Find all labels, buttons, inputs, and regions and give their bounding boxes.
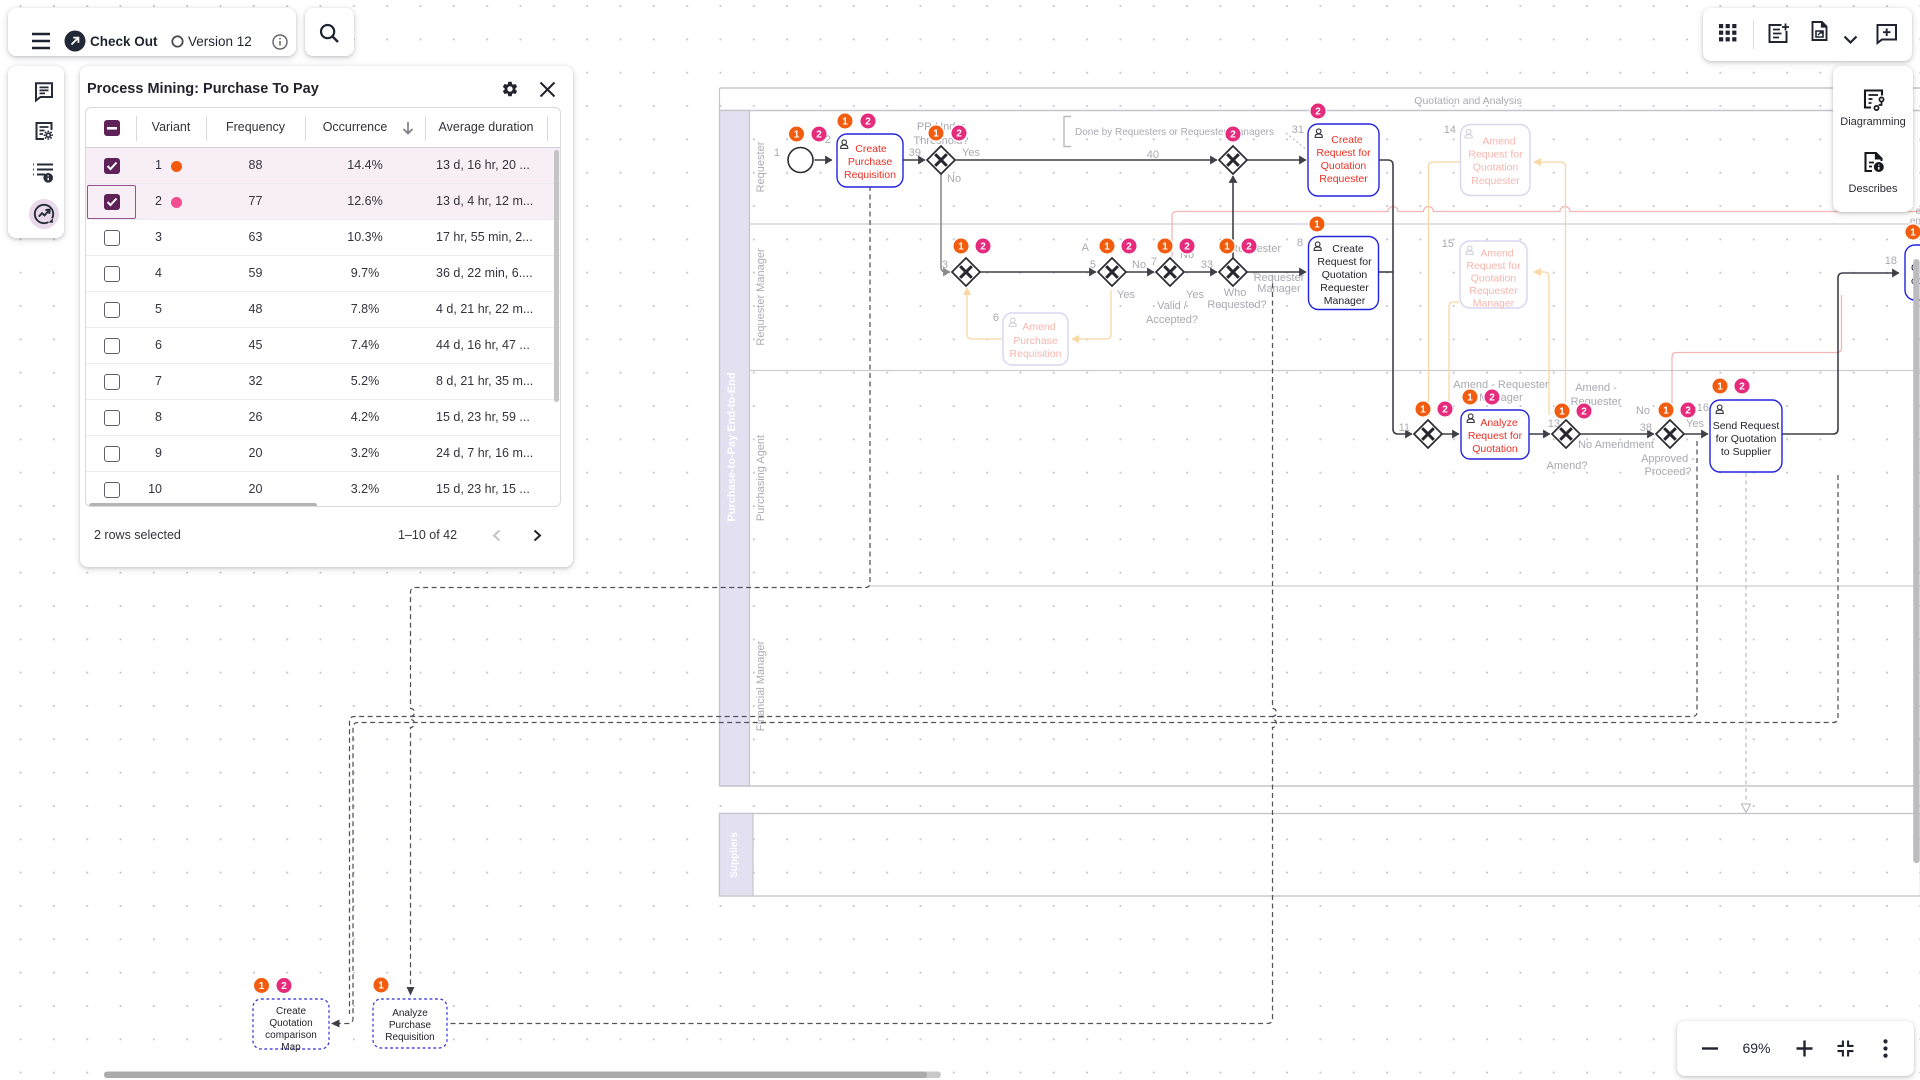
svg-text:to Supplier: to Supplier [1721,446,1772,458]
svg-text:2: 2 [980,242,986,253]
svg-text:1: 1 [1717,382,1723,393]
svg-text:2: 2 [281,981,287,992]
svg-text:Financial Manager: Financial Manager [755,640,767,731]
svg-text:1: 1 [1467,393,1473,404]
svg-text:2: 2 [1685,406,1691,417]
svg-text:1: 1 [774,147,780,159]
svg-text:Send Request: Send Request [1713,420,1780,432]
svg-text:No: No [947,173,961,185]
svg-text:2: 2 [1739,382,1745,393]
svg-text:Yes: Yes [1186,289,1204,301]
svg-text:2: 2 [1184,242,1190,253]
svg-text:31: 31 [1292,124,1304,136]
svg-text:Quotation and Analysis: Quotation and Analysis [1414,95,1521,107]
svg-text:1: 1 [259,981,265,992]
svg-text:2: 2 [1315,107,1321,118]
svg-text:No Amendment: No Amendment [1578,439,1654,451]
svg-text:Suppliers: Suppliers [729,832,740,878]
svg-text:1: 1 [1663,406,1669,417]
svg-text:Requester: Requester [755,141,767,192]
svg-text:2: 2 [956,129,962,140]
svg-text:Quotation: Quotation [269,1018,312,1029]
svg-text:Request for: Request for [1317,256,1372,268]
svg-text:Quotation: Quotation [1321,160,1367,172]
svg-text:Quotation: Quotation [1471,273,1517,285]
svg-text:Requisition: Requisition [1010,348,1062,360]
svg-text:Create: Create [276,1006,306,1017]
svg-text:Who: Who [1224,287,1247,299]
svg-text:Manager: Manager [1257,283,1301,295]
svg-text:1: 1 [1314,220,1320,231]
svg-text:33: 33 [1201,259,1213,271]
svg-text:Purchase: Purchase [1013,335,1058,347]
svg-text:Quotation: Quotation [1472,443,1518,455]
svg-text:1: 1 [1224,242,1230,253]
svg-text:2: 2 [1581,407,1587,418]
svg-text:11: 11 [1399,422,1410,434]
svg-text:Valid /: Valid / [1157,300,1188,312]
svg-text:Requested?: Requested? [1207,299,1266,311]
svg-text:2: 2 [1442,405,1448,416]
svg-text:5: 5 [1090,259,1096,271]
svg-text:comparison: comparison [265,1030,317,1041]
svg-text:Proceed?: Proceed? [1644,466,1691,478]
svg-text:2: 2 [825,134,831,146]
svg-text:14: 14 [1444,124,1456,136]
svg-text:1: 1 [1162,242,1168,253]
svg-text:Analyze: Analyze [1480,417,1518,429]
svg-text:No: No [1636,405,1650,417]
svg-text:Quotation: Quotation [1473,162,1519,174]
svg-text:7: 7 [1151,256,1157,268]
svg-text:13: 13 [1548,418,1560,430]
svg-text:Quotation: Quotation [1322,269,1368,281]
svg-text:Yes: Yes [962,147,980,159]
svg-text:Purchase: Purchase [848,156,893,168]
svg-text:1: 1 [933,129,939,140]
svg-text:for Quotation: for Quotation [1716,433,1777,445]
svg-text:2: 2 [865,117,871,128]
svg-text:Request for: Request for [1468,149,1523,161]
svg-text:Requester: Requester [1320,282,1369,294]
svg-text:Amend: Amend [1480,248,1513,260]
svg-text:Requester Manager: Requester Manager [755,248,767,346]
svg-text:Create: Create [1331,134,1363,146]
svg-text:Request for: Request for [1466,260,1521,272]
svg-text:Create: Create [1332,243,1364,255]
svg-text:Accepted?: Accepted? [1146,314,1198,326]
svg-text:2: 2 [1230,130,1236,141]
svg-text:No: No [1132,259,1146,271]
svg-text:Purchase: Purchase [389,1020,432,1031]
svg-text:Approved -: Approved - [1641,453,1695,465]
svg-text:Amend: Amend [1482,136,1515,148]
svg-text:Done by Requesters or Requeste: Done by Requesters or Requester Managers [1075,127,1274,138]
svg-text:Purchasing Agent: Purchasing Agent [755,435,767,521]
svg-text:Manager: Manager [1324,295,1366,307]
svg-text:3: 3 [942,259,948,271]
svg-text:Amend -: Amend - [1575,382,1617,394]
svg-text:Requisition: Requisition [844,169,896,181]
svg-text:1: 1 [378,981,384,992]
svg-text:1: 1 [1104,242,1110,253]
svg-text:Requester: Requester [1471,175,1520,187]
svg-text:2: 2 [1489,393,1495,404]
svg-text:Amend?: Amend? [1547,460,1588,472]
svg-text:1: 1 [1559,407,1565,418]
svg-text:Yes: Yes [1117,289,1135,301]
svg-text:Request for: Request for [1468,430,1523,442]
svg-text:A: A [1082,242,1090,254]
svg-text:16: 16 [1697,402,1709,414]
svg-text:18: 18 [1885,255,1897,267]
svg-text:6: 6 [993,312,999,324]
svg-text:1: 1 [842,117,848,128]
svg-text:Yes: Yes [1686,418,1704,430]
svg-text:Map: Map [281,1042,301,1053]
svg-text:38: 38 [1640,422,1652,434]
svg-text:39: 39 [909,147,921,159]
svg-text:8: 8 [1297,237,1303,249]
svg-text:Analyze: Analyze [392,1008,428,1019]
svg-text:2: 2 [816,130,822,141]
svg-text:2: 2 [1126,242,1132,253]
svg-text:1: 1 [1420,405,1426,416]
svg-text:Manager: Manager [1473,298,1515,310]
svg-text:1: 1 [794,130,800,141]
svg-text:1: 1 [1910,228,1916,239]
svg-text:40: 40 [1147,149,1159,161]
svg-text:Requester: Requester [1319,173,1368,185]
svg-text:2: 2 [1246,242,1252,253]
svg-text:15: 15 [1442,238,1454,250]
svg-text:Create: Create [855,143,887,155]
svg-text:Request for: Request for [1316,147,1371,159]
svg-text:Purchase-to-Pay End-to-End: Purchase-to-Pay End-to-End [726,372,738,521]
svg-text:1: 1 [958,242,964,253]
svg-text:Amend: Amend [1022,321,1055,333]
svg-text:Requisition: Requisition [385,1032,434,1043]
svg-text:Requester: Requester [1469,285,1518,297]
